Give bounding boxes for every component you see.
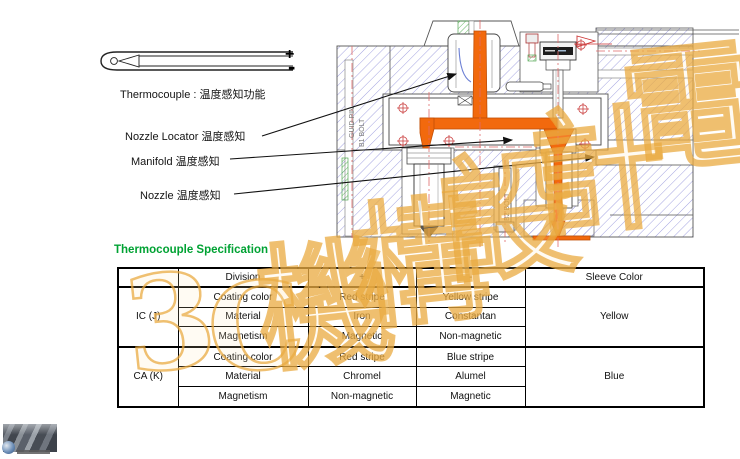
- label-thermocouple: Thermocouple : 温度感知功能: [120, 86, 266, 102]
- label-manifold-zh: 温度感知: [176, 156, 220, 168]
- cell-division: Material: [178, 367, 308, 387]
- header-division: Division: [178, 268, 308, 287]
- label-nozzle-locator-zh: 温度感知: [201, 131, 245, 143]
- cell-sleeve-ca: Blue: [525, 347, 704, 407]
- group-ca-k: CA (K): [118, 347, 178, 407]
- label-nozzle-locator: Nozzle Locator 温度感知: [125, 128, 245, 144]
- cell-plus: Chromel: [308, 367, 416, 387]
- cell-minus: Alumel: [416, 367, 525, 387]
- header-sleeve-color: Sleeve Color: [525, 268, 704, 287]
- label-nozzle-en: Nozzle: [140, 190, 174, 202]
- cell-sleeve-ic: Yellow: [525, 287, 704, 347]
- probe-minus-terminal: -: [288, 56, 295, 78]
- cell-division: Coating color: [178, 287, 308, 307]
- label-thermocouple-zh: 温度感知功能: [200, 89, 266, 101]
- label-nozzle-zh: 温度感知: [177, 190, 221, 202]
- table-row: IC (J) Coating color Red stripe Yellow s…: [118, 287, 704, 307]
- brand-logo-icon: [2, 441, 15, 454]
- group-ic-j: IC (J): [118, 287, 178, 347]
- label-manifold: Manifold 温度感知: [131, 153, 220, 169]
- cell-plus: Non-magnetic: [308, 386, 416, 406]
- cell-division: Magnetism: [178, 327, 308, 347]
- cell-division: Magnetism: [178, 386, 308, 406]
- header-empty: [118, 268, 178, 287]
- header-minus: -: [416, 268, 525, 287]
- slide-page: GUID PIN B1 BOLT B2 BOLT + - Thermocoupl…: [0, 0, 740, 459]
- cell-minus: Constantan: [416, 307, 525, 327]
- cell-minus: Non-magnetic: [416, 327, 525, 347]
- cell-division: Material: [178, 307, 308, 327]
- header-plus: +: [308, 268, 416, 287]
- label-nozzle: Nozzle 温度感知: [140, 187, 221, 203]
- thermocouple-spec-table: Division + - Sleeve Color IC (J) Coating…: [117, 267, 705, 408]
- cell-division: Coating color: [178, 347, 308, 367]
- cell-minus: Blue stripe: [416, 347, 525, 367]
- cell-plus: Red stripe: [308, 347, 416, 367]
- label-thermocouple-en: Thermocouple :: [120, 89, 196, 101]
- label-manifold-en: Manifold: [131, 156, 173, 168]
- cell-plus: Red stripe: [308, 287, 416, 307]
- label-nozzle-locator-en: Nozzle Locator: [125, 131, 198, 143]
- cell-plus: Magnetic: [308, 327, 416, 347]
- section-title: Thermocouple Specification: [114, 244, 268, 256]
- table-header-row: Division + - Sleeve Color: [118, 268, 704, 287]
- cell-minus: Yellow stripe: [416, 287, 525, 307]
- thumbnail-caption: [17, 450, 50, 454]
- cell-minus: Magnetic: [416, 386, 525, 406]
- cell-plus: Iron: [308, 307, 416, 327]
- table-row: CA (K) Coating color Red stripe Blue str…: [118, 347, 704, 367]
